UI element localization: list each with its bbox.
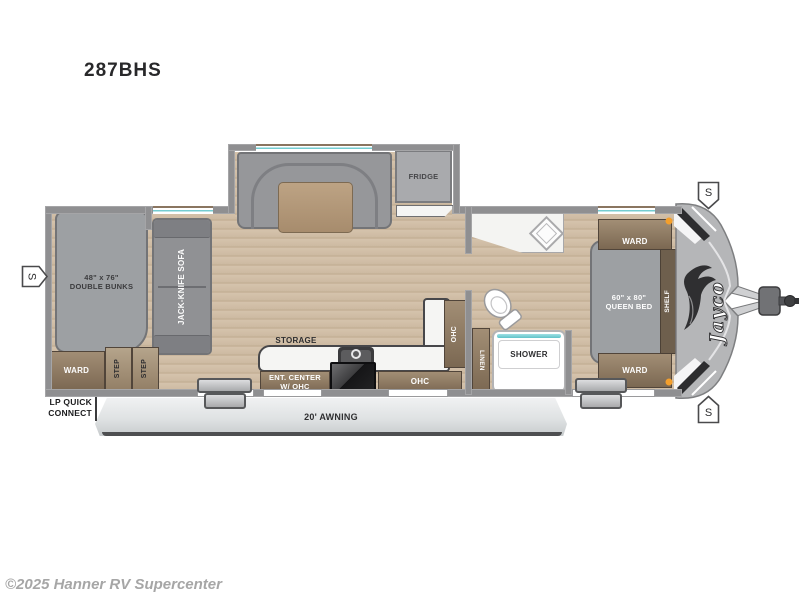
bunks-size-label: 48" x 76" — [84, 273, 118, 282]
window-bottom-1 — [263, 389, 322, 397]
awning: 20' AWNING — [95, 398, 567, 436]
entry-steps-bedroom-lower — [580, 393, 622, 409]
speaker-top-label: S — [705, 187, 712, 199]
floorplan-model-title: 287BHS — [84, 60, 162, 82]
wall-bath-lower — [465, 290, 472, 395]
ohc-side-label: OHC — [451, 326, 460, 342]
slideout-wall-left — [228, 144, 235, 214]
double-bunks: 48" x 76" DOUBLE BUNKS — [55, 211, 148, 353]
shower-pan: SHOWER — [498, 340, 560, 369]
entry-steps-bedroom-upper — [575, 378, 627, 393]
fridge-label: FRIDGE — [409, 172, 439, 181]
shower-label: SHOWER — [510, 350, 548, 360]
hitch-pin — [794, 298, 799, 304]
awning-label: 20' AWNING — [95, 412, 567, 423]
wardrobe-rear-label: WARD — [64, 366, 89, 376]
wall-bunkroom-stub — [145, 206, 152, 230]
window-dinette-slide — [256, 144, 372, 151]
bed-name-label: QUEEN BED — [606, 302, 653, 311]
wall-bath-bedroom — [565, 330, 572, 395]
ohc-side: OHC — [444, 300, 466, 368]
hitch-coupler — [759, 287, 780, 315]
lp-quick-connect-line2: CONNECT — [18, 408, 92, 419]
sofa-label: JACK-KNIFE SOFA — [154, 220, 210, 353]
fridge-counter — [396, 205, 453, 217]
floorplan-page: { "title": "287BHS", "watermark": "©2025… — [0, 0, 800, 600]
bunk-step-1: STEP — [105, 347, 132, 391]
marker-light-bottom — [666, 379, 673, 386]
entry-steps-main-upper — [197, 378, 252, 393]
speaker-icon-left: S — [21, 265, 48, 288]
ward-bottom-label: WARD — [622, 366, 647, 376]
dinette-table — [278, 182, 353, 233]
queen-bed: 60" x 80" QUEEN BED — [590, 240, 668, 364]
vanity-sink-basin — [536, 223, 557, 244]
bunks-name-label: DOUBLE BUNKS — [70, 282, 133, 291]
window-bedroom-top — [598, 206, 655, 214]
lp-connect-tick — [95, 394, 97, 421]
ohc-kitchen-label: OHC — [411, 377, 430, 387]
faucet-icon — [351, 349, 361, 359]
wall-bath-upper — [465, 206, 472, 254]
bunk-step-2: STEP — [132, 347, 159, 391]
dealer-watermark: ©2025 Hanner RV Supercenter — [5, 576, 222, 593]
ent-center-label-line1: ENT. CENTER — [269, 373, 321, 382]
brand-logo-text: Jayco — [706, 281, 728, 346]
linen-cabinet: LINEN — [472, 328, 490, 393]
speaker-icon-top: S — [697, 181, 720, 210]
linen-label: LINEN — [477, 350, 485, 371]
fridge: FRIDGE — [395, 150, 452, 203]
jack-knife-sofa: JACK-KNIFE SOFA — [152, 218, 212, 355]
bed-size-label: 60" x 80" — [612, 293, 646, 302]
entry-steps-main-lower — [204, 393, 246, 409]
speaker-icon-bottom: S — [697, 395, 720, 424]
wall-left-rear — [45, 206, 52, 397]
lp-quick-connect-line1: LP QUICK — [18, 397, 92, 408]
step-1-label: STEP — [114, 359, 123, 378]
window-bottom-2 — [388, 389, 448, 397]
hitch-ball — [785, 296, 796, 307]
shower: SHOWER — [492, 330, 566, 393]
awning-roller — [102, 432, 562, 436]
lp-quick-connect: LP QUICK CONNECT — [18, 397, 92, 418]
speaker-left-label: S — [26, 273, 38, 280]
step-2-label: STEP — [141, 359, 150, 378]
ward-top-label: WARD — [622, 237, 647, 247]
front-cap-and-hitch: Jayco — [661, 200, 800, 402]
marker-light-top — [666, 218, 673, 225]
speaker-bottom-label: S — [705, 407, 712, 419]
slideout-wall-right — [453, 144, 460, 214]
window-bunkroom-top — [153, 206, 213, 214]
wardrobe-rear: WARD — [48, 351, 105, 391]
